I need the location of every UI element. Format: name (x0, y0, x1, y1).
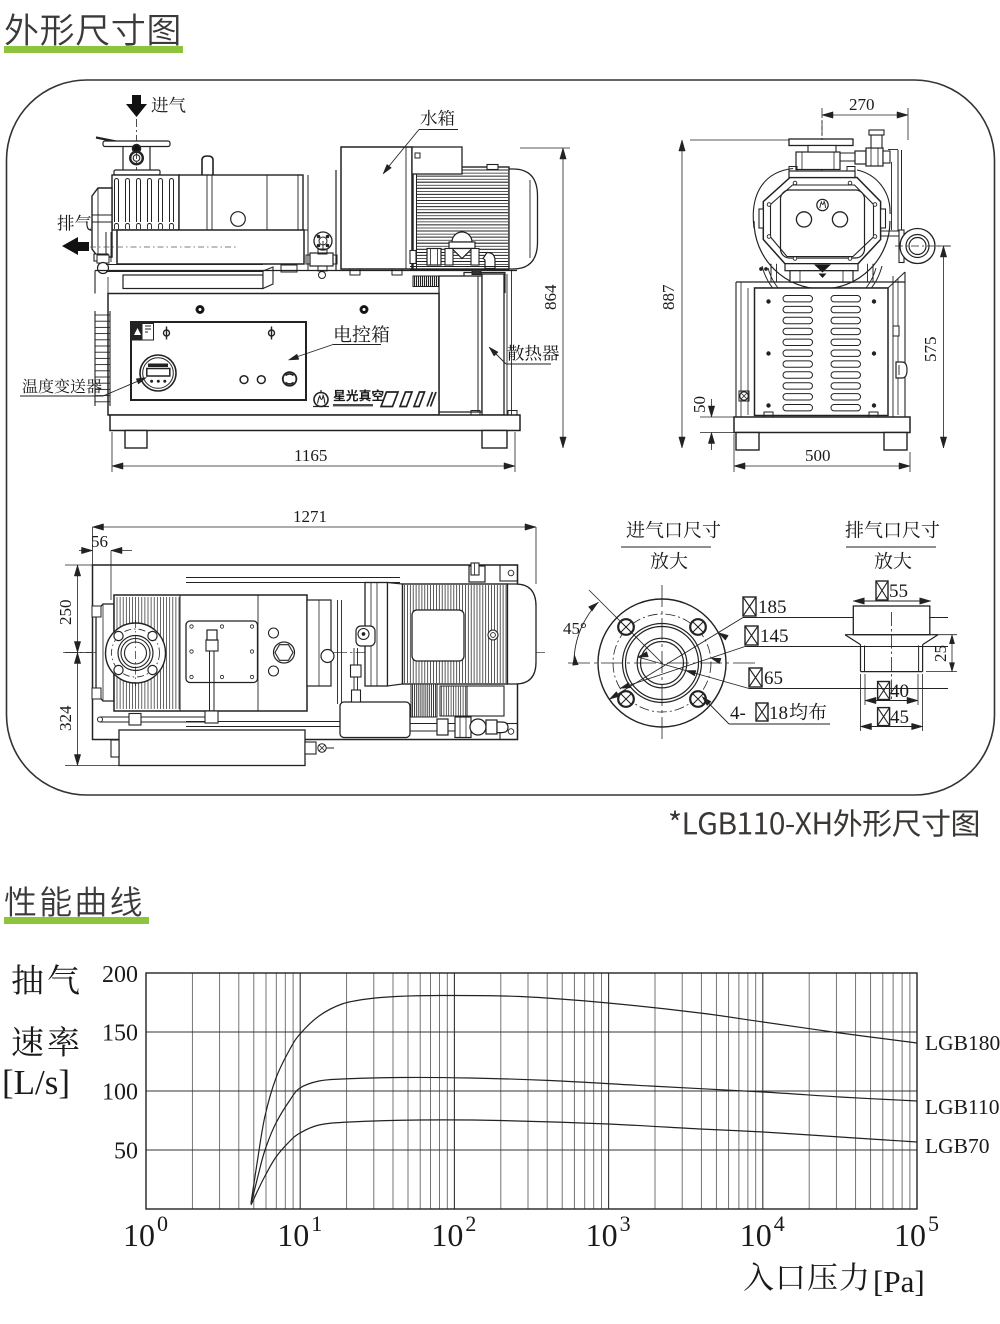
svg-text:864: 864 (541, 284, 560, 310)
svg-text:50: 50 (114, 1139, 138, 1165)
svg-text:[Pa]: [Pa] (873, 1264, 925, 1299)
svg-text:3: 3 (620, 1211, 631, 1236)
svg-text:50: 50 (690, 396, 709, 413)
svg-text:200: 200 (102, 962, 138, 988)
svg-text:10: 10 (740, 1217, 772, 1253)
svg-text:LGB180: LGB180 (925, 1031, 1000, 1055)
svg-text:55: 55 (889, 581, 908, 602)
svg-text:150: 150 (102, 1021, 138, 1047)
svg-text:100: 100 (102, 1080, 138, 1106)
svg-text:0: 0 (157, 1211, 168, 1236)
svg-text:250: 250 (56, 600, 75, 626)
svg-text:45: 45 (890, 707, 909, 728)
svg-text:10: 10 (123, 1217, 155, 1253)
svg-text:145: 145 (760, 626, 789, 647)
svg-text:1271: 1271 (293, 507, 327, 526)
svg-text:4-: 4- (730, 703, 746, 724)
svg-text:18: 18 (769, 703, 788, 724)
svg-text:56: 56 (91, 532, 108, 551)
svg-text:[L/s]: [L/s] (2, 1063, 70, 1102)
svg-text:270: 270 (849, 95, 875, 114)
svg-text:25: 25 (931, 645, 950, 662)
svg-text:5: 5 (928, 1211, 939, 1236)
svg-text:10: 10 (894, 1217, 926, 1253)
svg-text:185: 185 (758, 597, 787, 618)
svg-text:575: 575 (921, 337, 940, 363)
svg-text:1: 1 (311, 1211, 322, 1236)
svg-text:40: 40 (890, 681, 909, 702)
svg-text:887: 887 (659, 284, 678, 310)
svg-text:LGB70: LGB70 (925, 1134, 990, 1158)
svg-text:10: 10 (431, 1217, 463, 1253)
svg-text:10: 10 (586, 1217, 618, 1253)
svg-text:1165: 1165 (294, 446, 327, 465)
svg-text:65: 65 (764, 668, 783, 689)
svg-text:45°: 45° (563, 619, 587, 638)
svg-text:10: 10 (277, 1217, 309, 1253)
svg-text:4: 4 (774, 1211, 785, 1236)
svg-text:2: 2 (465, 1211, 476, 1236)
svg-text:324: 324 (56, 705, 75, 731)
svg-text:500: 500 (805, 446, 831, 465)
svg-text:LGB110: LGB110 (925, 1095, 999, 1119)
